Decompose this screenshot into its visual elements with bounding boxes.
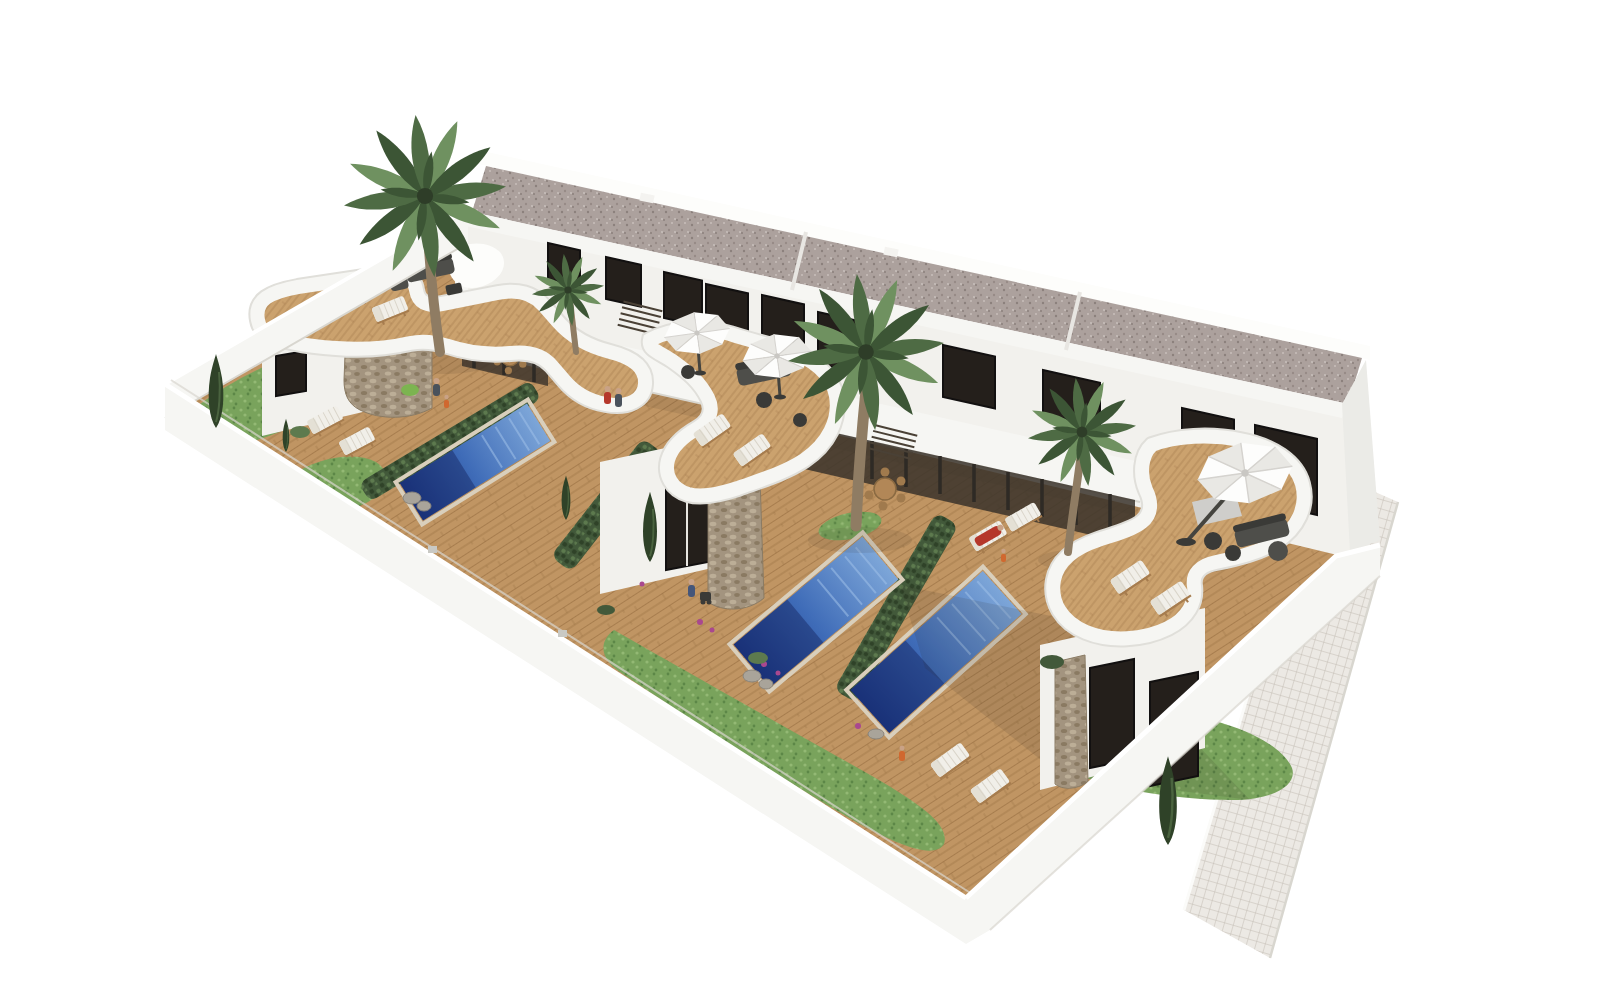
person-adult-deck1	[433, 378, 440, 396]
person-woman-terrace1	[604, 386, 611, 404]
render-canvas: architectural-3d-render	[0, 0, 1600, 1004]
person-child-deck1	[444, 395, 449, 408]
person-child-deck3	[1001, 549, 1006, 562]
pouf	[681, 365, 695, 379]
architectural-render: architectural-3d-render	[0, 0, 1600, 1004]
egg-chair	[1268, 541, 1288, 561]
wall-vent	[428, 546, 437, 553]
pouf	[756, 392, 772, 408]
pouf	[1204, 532, 1222, 550]
person-deck-bottom	[899, 746, 905, 762]
pouf	[793, 413, 807, 427]
pouf	[1225, 545, 1241, 561]
wall-vent	[558, 630, 567, 637]
person-man-terrace1	[615, 388, 622, 407]
stone-wall-3	[1055, 655, 1088, 788]
